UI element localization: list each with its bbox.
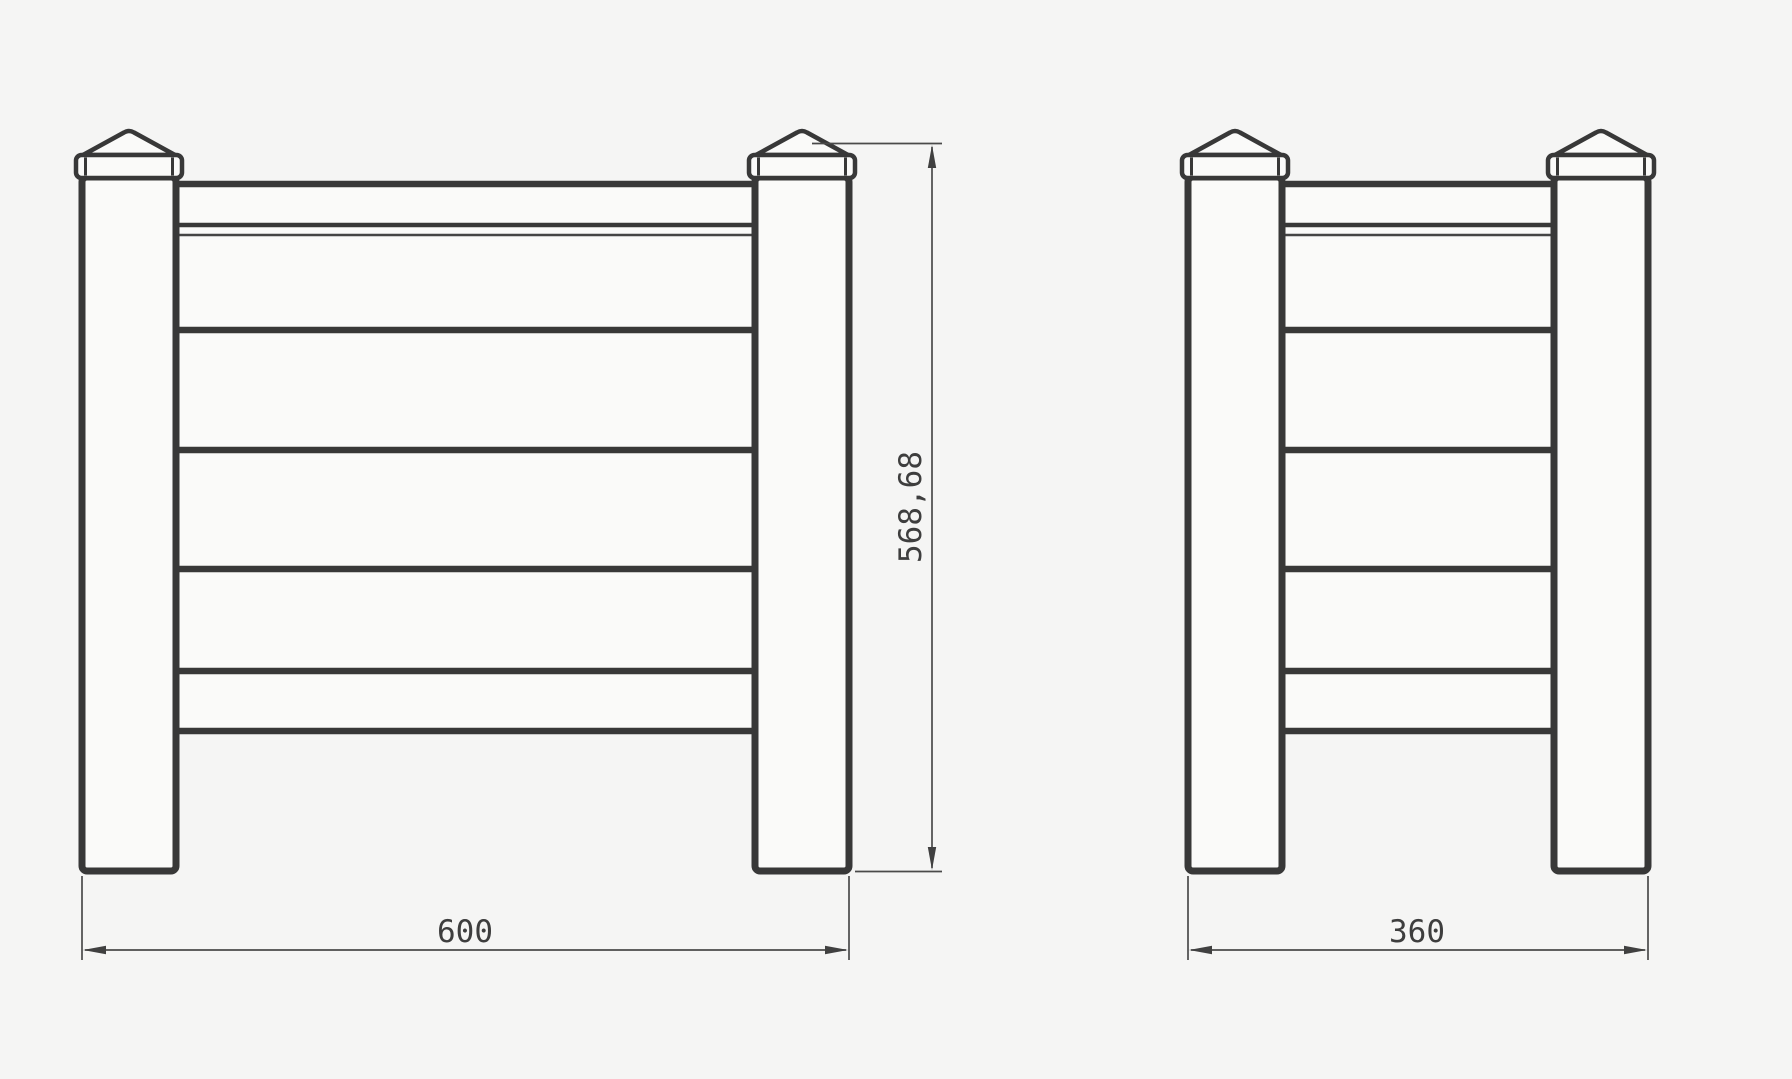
technical-drawing-canvas: 568,68 600 360 bbox=[0, 0, 1792, 1079]
fence-post bbox=[1182, 131, 1288, 871]
panel-face bbox=[176, 184, 755, 731]
panel-face bbox=[1282, 184, 1554, 731]
arrowhead-right-icon bbox=[825, 946, 848, 954]
dimension-label-height: 568,68 bbox=[893, 451, 929, 563]
width-dimension-side: 360 bbox=[1188, 876, 1648, 960]
arrowhead-left-icon bbox=[1189, 946, 1212, 954]
fence-post bbox=[76, 131, 182, 871]
fence-post bbox=[1548, 131, 1654, 871]
front-panel-view bbox=[76, 131, 855, 871]
arrowhead-left-icon bbox=[83, 946, 106, 954]
side-panel-view bbox=[1182, 131, 1654, 871]
width-dimension-front: 600 bbox=[82, 876, 849, 960]
dimension-label-side-width: 360 bbox=[1389, 914, 1445, 950]
arrowhead-right-icon bbox=[1624, 946, 1647, 954]
arrowhead-down-icon bbox=[928, 847, 936, 870]
fence-post bbox=[749, 131, 855, 871]
fence-technical-drawing: 568,68 600 360 bbox=[0, 0, 1792, 1079]
arrowhead-up-icon bbox=[928, 145, 936, 168]
dimension-label-front-width: 600 bbox=[437, 914, 493, 950]
